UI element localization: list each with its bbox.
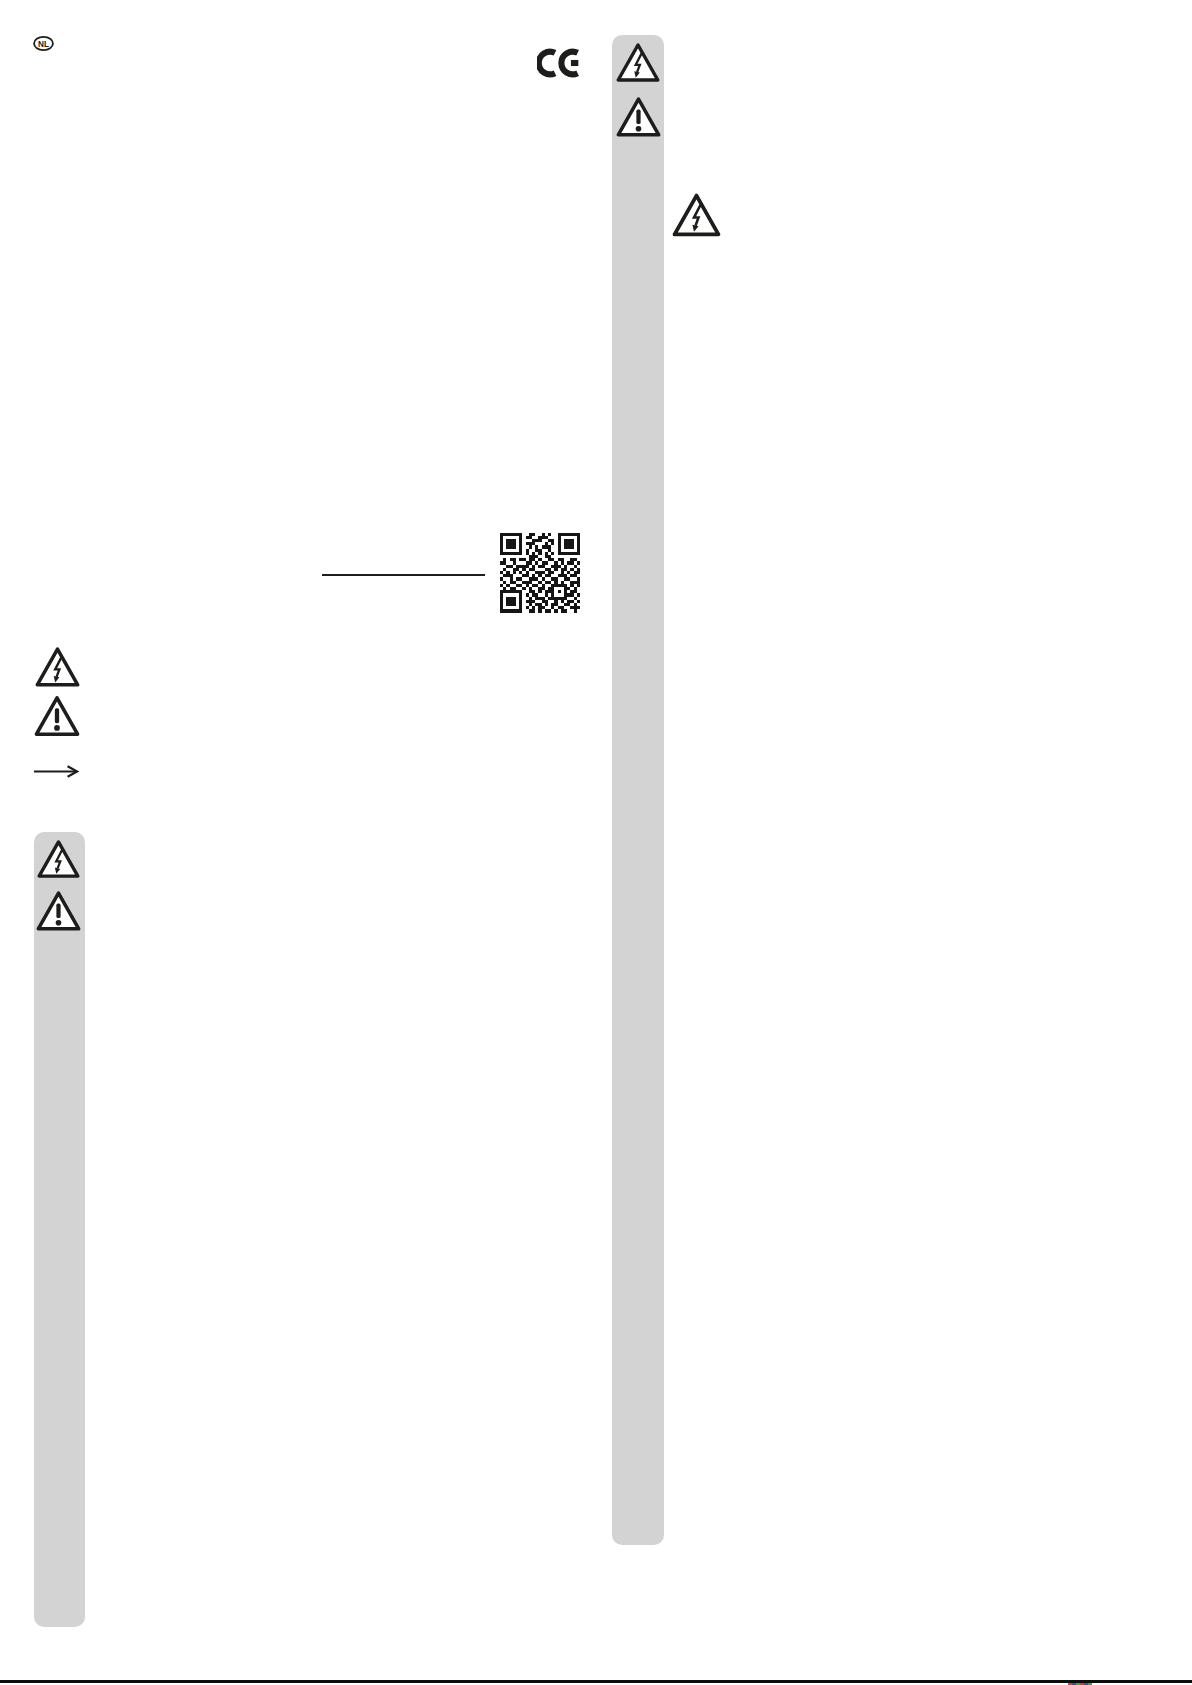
manual-page: { "page": { "type": "instruction-manual-…: [0, 0, 1192, 1685]
right-warning-bar: [612, 35, 664, 1545]
warning-icon: [35, 889, 82, 933]
warning-icon: [33, 694, 81, 738]
language-badge: NL: [33, 36, 54, 51]
high-voltage-icon: [34, 645, 81, 689]
blank-underline: [322, 574, 485, 576]
warning-icon: [615, 95, 662, 139]
language-badge-label: NL: [38, 40, 49, 49]
high-voltage-icon: [671, 191, 722, 239]
high-voltage-icon: [36, 838, 81, 880]
page-bottom-rule: [0, 1680, 1192, 1683]
ce-mark-icon: [537, 46, 584, 80]
right-arrow-icon: [33, 762, 81, 781]
qr-code: [500, 532, 580, 613]
left-warning-bar: [34, 832, 85, 1627]
high-voltage-icon: [615, 41, 661, 84]
